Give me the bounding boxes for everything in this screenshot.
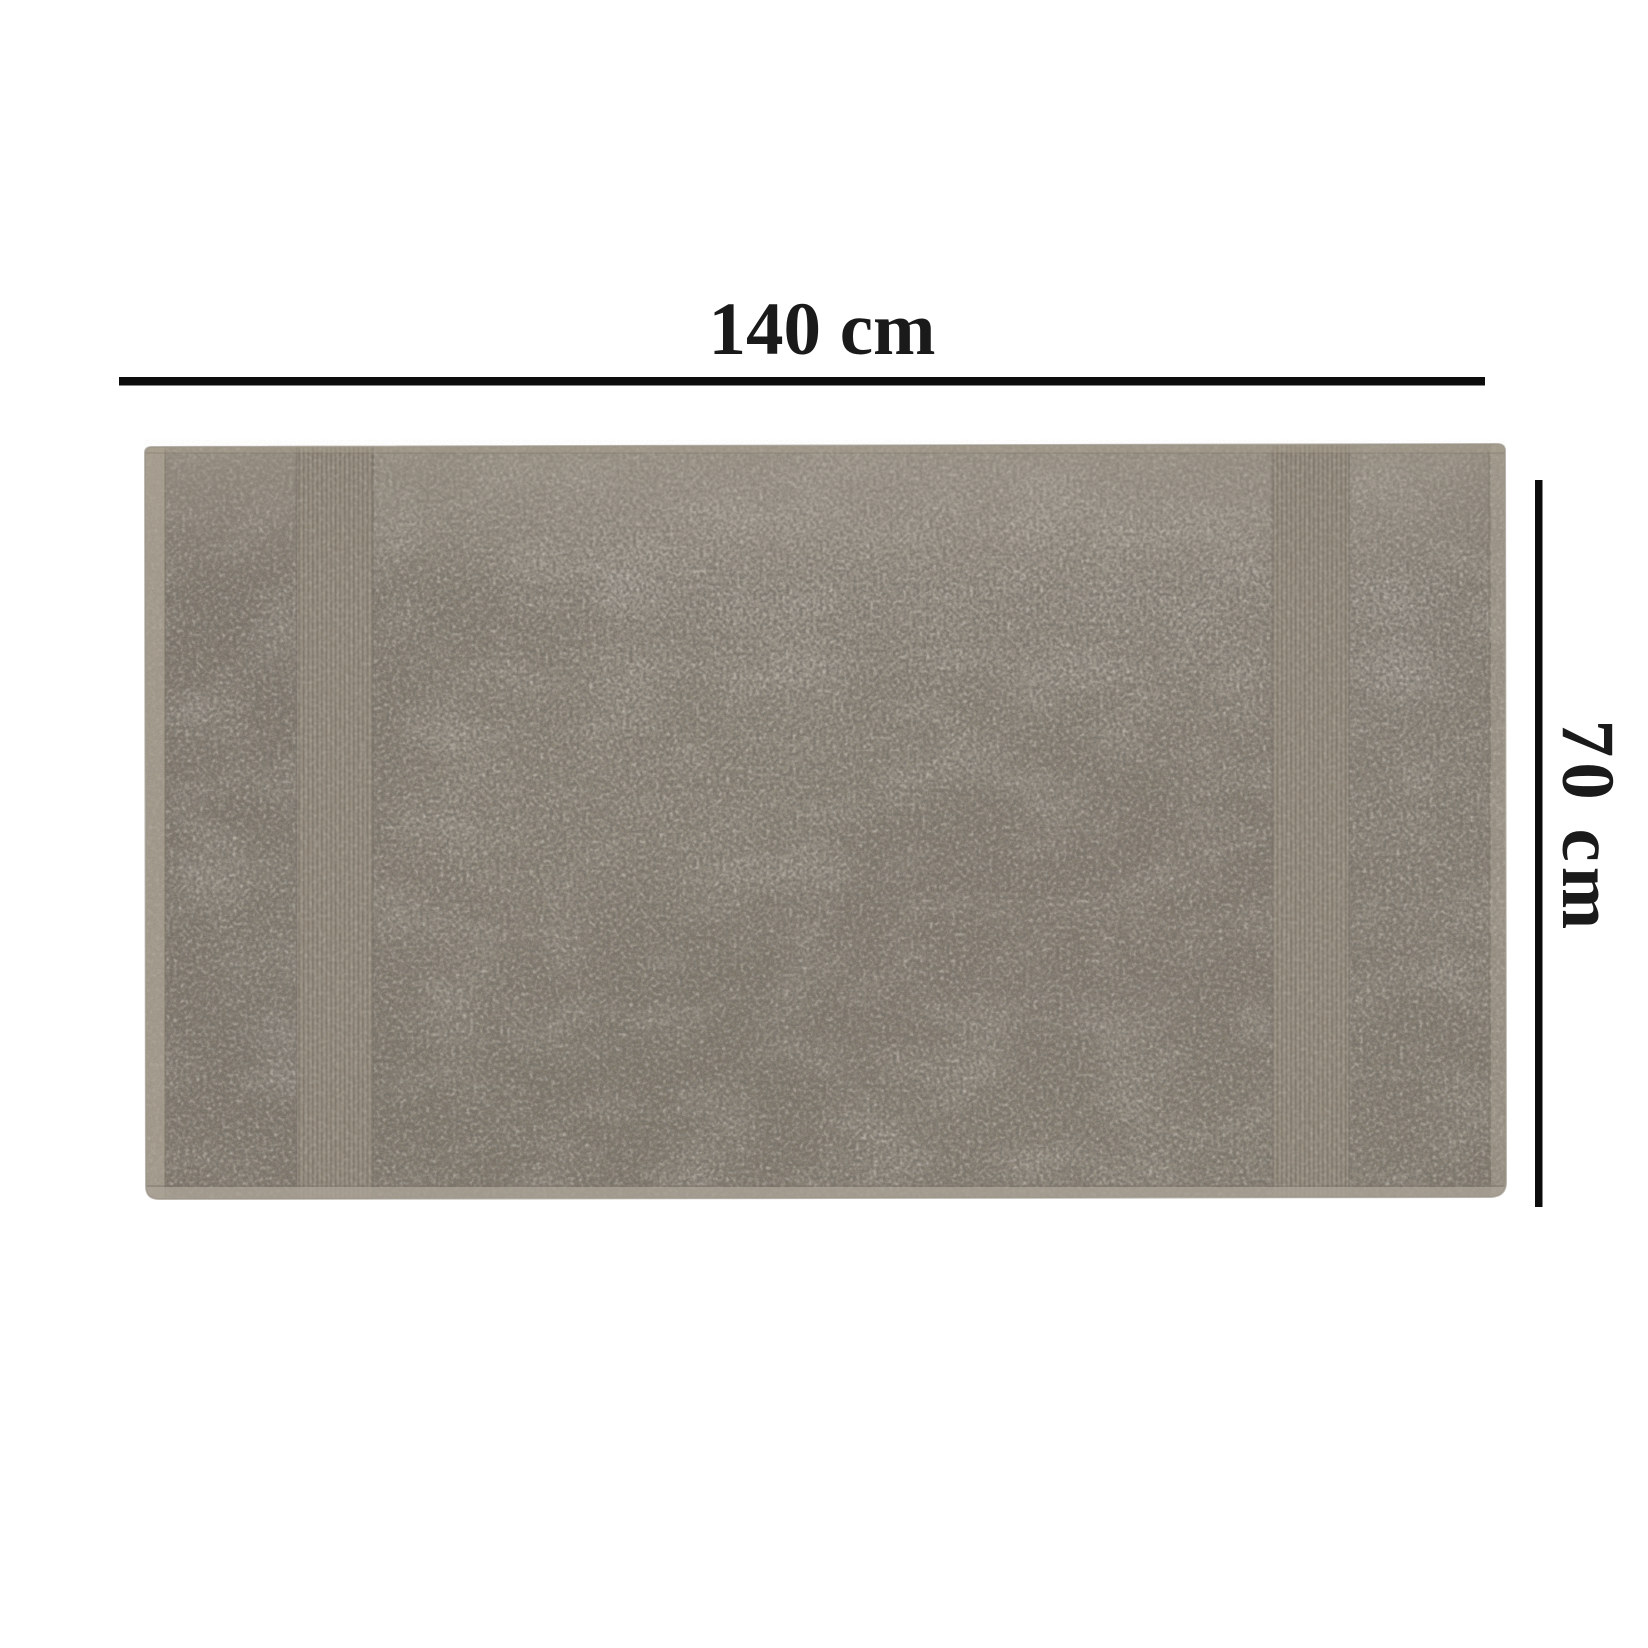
svg-text:70 cm: 70 cm [1546, 720, 1629, 935]
svg-text:140 cm: 140 cm [708, 288, 935, 371]
